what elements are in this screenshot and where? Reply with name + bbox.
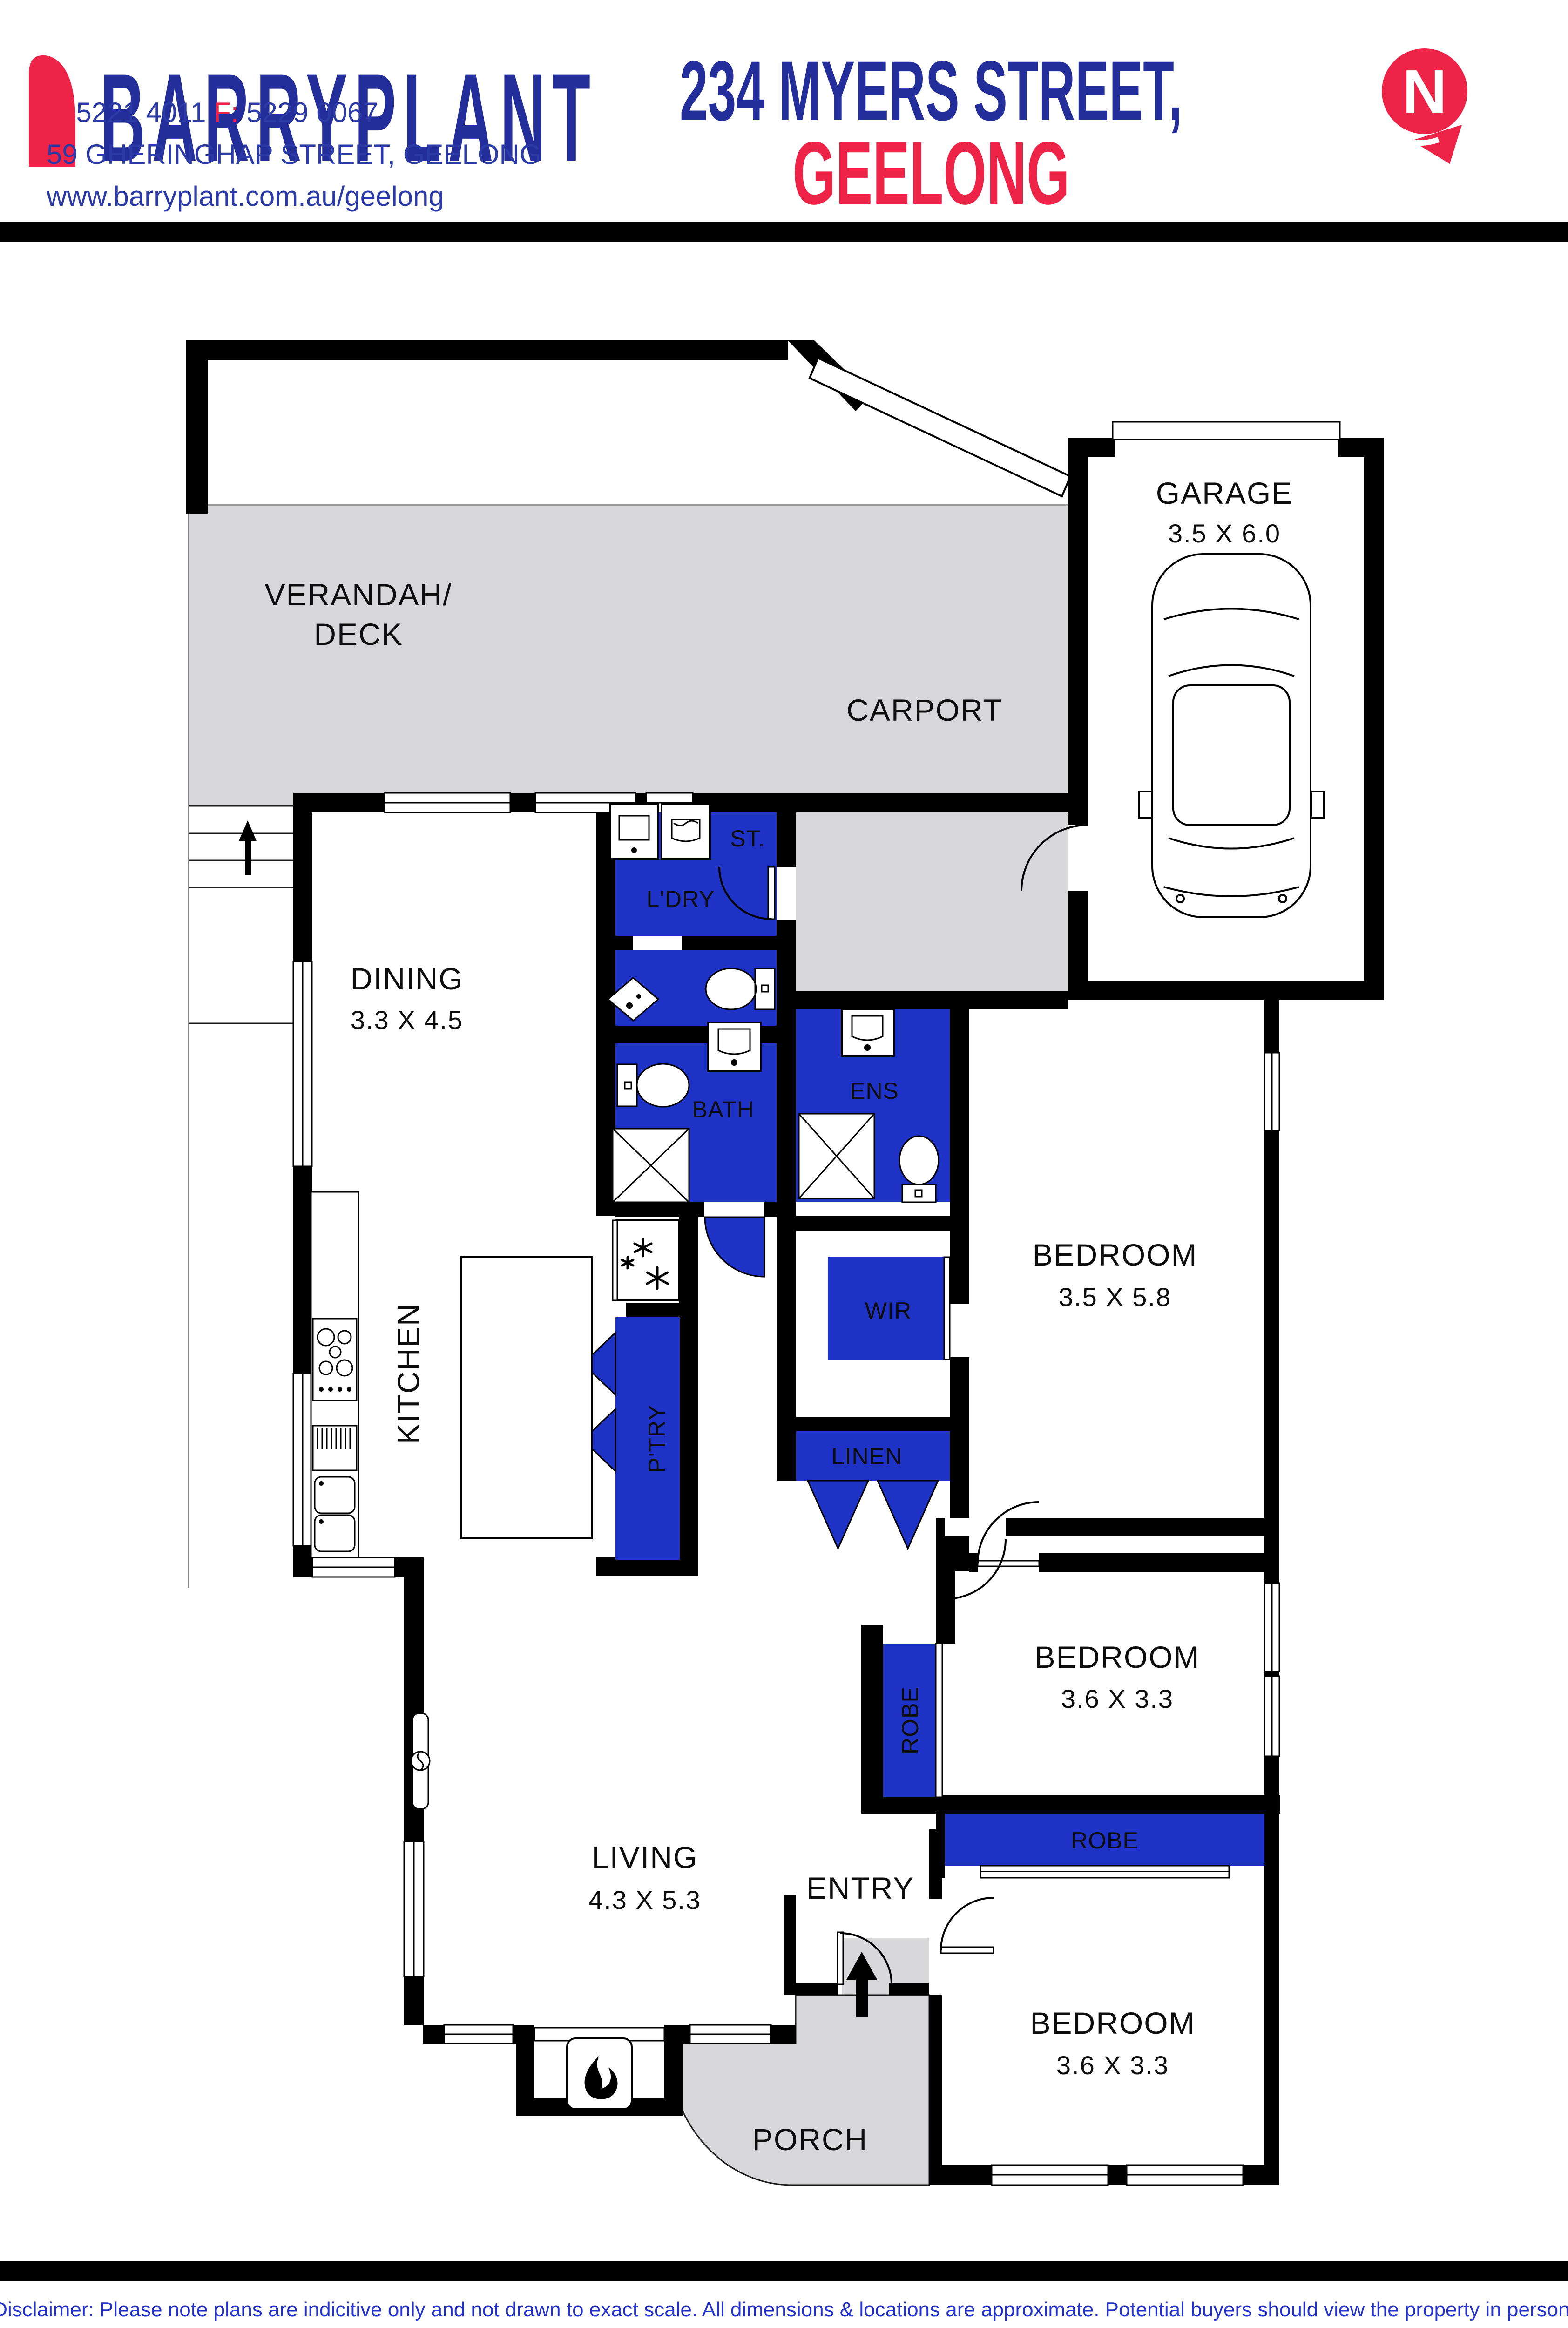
verandah-label: VERANDAH/	[264, 577, 452, 612]
garage-label: GARAGE	[1156, 476, 1293, 510]
wir-label: WIR	[865, 1298, 912, 1324]
porch-label: PORCH	[752, 2122, 868, 2157]
garage-door	[1113, 422, 1340, 440]
window-marker-icon	[411, 1713, 430, 1809]
phone-fax-line: T: 5221 4011 F: 5229 0067	[47, 97, 378, 128]
ptry-label: P'TRY	[644, 1405, 670, 1473]
phone-number: 5221 4011	[76, 97, 206, 128]
phone-label: T:	[47, 97, 68, 128]
kitchen-island	[461, 1257, 592, 1538]
entry-label: ENTRY	[806, 1871, 915, 1905]
toilet-icon	[617, 1064, 689, 1107]
fridge-icon	[613, 1220, 679, 1300]
shower-icon	[613, 1129, 689, 1202]
dining-label: DINING	[351, 961, 464, 996]
living-dims: 4.3 X 5.3	[588, 1885, 701, 1915]
carport-area	[787, 806, 1068, 992]
bedroom1-label: BEDROOM	[1032, 1238, 1197, 1272]
garage-dims: 3.5 X 6.0	[1168, 519, 1281, 548]
kitchen-label: KITCHEN	[391, 1303, 426, 1444]
floorplan-page: BARRYPLANT T: 5221 4011 F: 5229 0067 59 …	[0, 0, 1568, 2328]
bedroom2-dims: 3.6 X 3.3	[1061, 1684, 1174, 1713]
shower-icon	[799, 1114, 874, 1198]
carport-label: CARPORT	[846, 693, 1003, 727]
ens-label: ENS	[850, 1078, 899, 1104]
header-divider-bar	[0, 222, 1568, 242]
office-address: 59 GHERINGHAP STREET, GEELONG	[47, 139, 541, 170]
bed2-robe-label: ROBE	[897, 1686, 923, 1754]
linen-bifold-door	[878, 1481, 938, 1549]
bedroom1-dims: 3.5 X 5.8	[1059, 1282, 1171, 1312]
linen-label: LINEN	[831, 1443, 902, 1469]
north-marker-icon: N	[1382, 48, 1467, 164]
bedroom3-dims: 3.6 X 3.3	[1056, 2051, 1169, 2080]
bath-door-swing	[705, 1217, 764, 1277]
fax-label: F:	[214, 97, 238, 128]
washing-machine-icon	[662, 804, 710, 859]
footer-divider-bar	[0, 2261, 1568, 2281]
linen-bifold-door	[808, 1481, 868, 1549]
footer: Disclaimer: Please note plans are indici…	[0, 2261, 1568, 2328]
north-letter: N	[1402, 57, 1446, 126]
bath-vanity-icon	[708, 1022, 761, 1071]
toilet-icon	[899, 1136, 939, 1202]
ens-vanity-icon	[842, 1009, 894, 1056]
bedroom2-label: BEDROOM	[1034, 1640, 1200, 1674]
fax-number: 5229 0067	[246, 97, 378, 128]
toilet-icon	[706, 968, 775, 1009]
bed3-robe-label: ROBE	[1071, 1827, 1139, 1854]
property-suburb-title: GEELONG	[792, 123, 1069, 223]
bath-label: BATH	[692, 1096, 754, 1123]
living-label: LIVING	[592, 1840, 698, 1875]
bedroom3-label: BEDROOM	[1030, 2006, 1195, 2040]
cooktop-icon	[313, 1319, 357, 1401]
dining-dims: 3.3 X 4.5	[351, 1005, 463, 1035]
website-link[interactable]: www.barryplant.com.au/geelong	[46, 181, 444, 212]
laundry-trough-icon	[610, 804, 658, 859]
angled-gate	[810, 358, 1070, 496]
dishwasher-icon	[313, 1426, 357, 1470]
kitchen-counter	[311, 1192, 358, 1557]
verandah-label2: DECK	[314, 617, 403, 651]
st-label: ST.	[730, 826, 765, 852]
verandah-deck-area	[189, 505, 1068, 806]
car-icon	[1139, 554, 1324, 917]
ldry-label: L'DRY	[646, 886, 715, 912]
steps-direction-arrow-icon	[239, 820, 257, 875]
fireplace-icon	[534, 2028, 664, 2109]
disclaimer-text: Disclaimer: Please note plans are indici…	[0, 2298, 1568, 2321]
header: BARRYPLANT T: 5221 4011 F: 5229 0067 59 …	[0, 43, 1568, 242]
